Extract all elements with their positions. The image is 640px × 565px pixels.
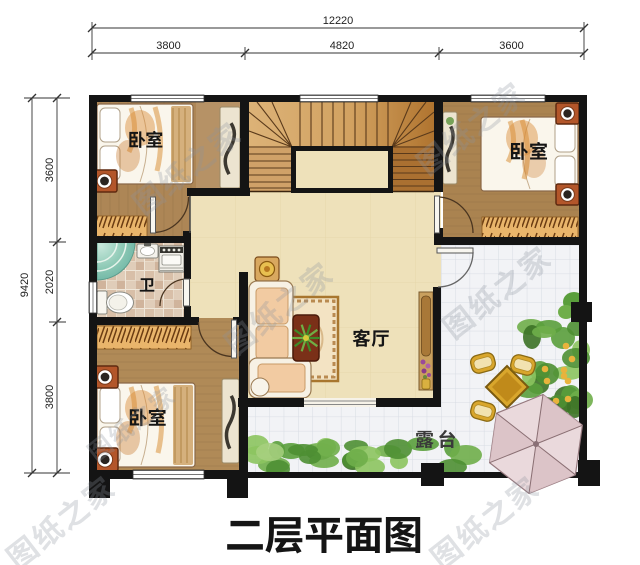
svg-text:3600: 3600 — [499, 40, 523, 52]
svg-text:12220: 12220 — [323, 15, 354, 27]
svg-text:3600: 3600 — [44, 158, 56, 182]
svg-text:3800: 3800 — [156, 40, 180, 52]
svg-text:3800: 3800 — [44, 385, 56, 409]
svg-text:2020: 2020 — [44, 270, 56, 294]
svg-text:4820: 4820 — [330, 40, 354, 52]
svg-text:9420: 9420 — [19, 273, 31, 297]
